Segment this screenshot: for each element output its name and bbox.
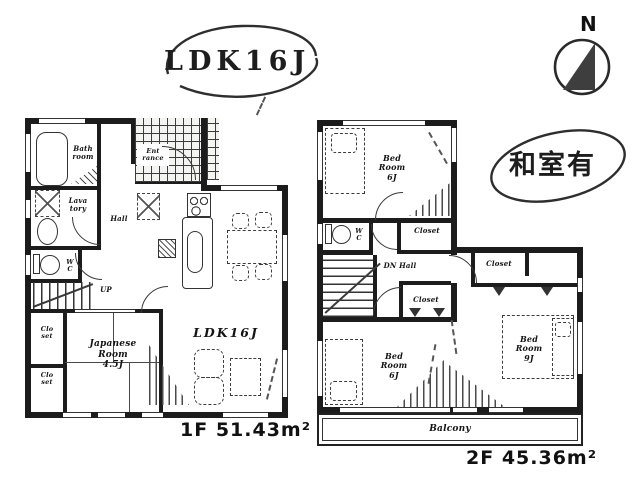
- living-table: [230, 358, 261, 396]
- dining-chair: [232, 213, 249, 229]
- floor2-area-label: 2F 45.36m²: [466, 449, 597, 468]
- dn-hall-label: DN Hall: [373, 260, 427, 272]
- window: [577, 278, 583, 292]
- hanger-triangle-icon: [493, 287, 505, 296]
- dining-table: [227, 230, 277, 264]
- lavatory-label: Lava tory: [63, 192, 93, 218]
- hanger-triangle-icon: [433, 308, 445, 317]
- closet-lower-label: Clo set: [31, 368, 63, 390]
- water-heater: [158, 239, 176, 258]
- window: [317, 132, 323, 180]
- window: [63, 412, 91, 418]
- floor1-plan: Bath room Lava tory W C Hall Ent rance: [25, 118, 288, 418]
- porch-tiles: [207, 118, 219, 180]
- stove: [187, 193, 211, 217]
- pillow: [555, 322, 571, 337]
- window: [317, 341, 323, 396]
- window: [39, 118, 85, 124]
- north-label: N: [580, 14, 597, 34]
- pillow: [331, 133, 357, 153]
- ldk-badge: LDK16J: [148, 20, 328, 104]
- window: [98, 412, 125, 418]
- window: [282, 235, 288, 281]
- shutter-mark-icon: [428, 132, 448, 164]
- corner-hatch: [409, 182, 451, 216]
- hall-label: Hall: [103, 212, 135, 226]
- toilet: [40, 255, 60, 275]
- sofa: [194, 349, 224, 378]
- shower-area-hatch: [71, 166, 97, 184]
- wall: [317, 317, 457, 322]
- toilet-tank: [325, 224, 332, 244]
- toilet-tank: [33, 254, 40, 274]
- window: [221, 185, 277, 191]
- north-arrow-icon: [552, 36, 616, 100]
- pillow: [330, 381, 357, 401]
- shutter-mark-icon: [451, 320, 458, 354]
- window: [577, 322, 583, 374]
- closet-a-label: Closet: [399, 223, 455, 239]
- dining-chair: [232, 265, 249, 281]
- bedroom-nw-label: Bed Room 6J: [369, 146, 415, 190]
- bedroom-sw-label: Bed Room 6J: [371, 343, 417, 389]
- balcony-label: Balcony: [319, 415, 581, 444]
- window: [317, 224, 323, 244]
- bedroom-e-label: Bed Room 9J: [507, 326, 551, 372]
- wc-label: W C: [352, 222, 366, 248]
- floor1-area-label: 1F 51.43m²: [180, 421, 311, 440]
- toilet: [332, 225, 351, 244]
- sliding-door: [75, 309, 135, 313]
- window: [451, 128, 457, 162]
- washing-machine: [35, 190, 60, 217]
- hanger-triangle-icon: [409, 308, 421, 317]
- corner-hatch: [449, 365, 505, 407]
- shutter-mark-icon: [266, 358, 278, 399]
- floor2-plan: Bed Room 6J W C Closet DN Hall Closet Cl…: [317, 120, 583, 413]
- window: [25, 134, 31, 172]
- refrigerator: [137, 193, 160, 220]
- wc-label: W C: [63, 253, 77, 279]
- wall: [525, 253, 529, 276]
- hanger-triangle-icon: [541, 287, 553, 296]
- window: [343, 120, 425, 126]
- up-label: UP: [93, 284, 119, 296]
- closet-upper-label: Clo set: [31, 322, 63, 344]
- corner-hatch: [149, 345, 189, 405]
- window: [142, 412, 163, 418]
- closet-b-label: Closet: [403, 292, 449, 308]
- window: [25, 255, 31, 275]
- bath-room-label: Bath room: [67, 140, 99, 166]
- sofa: [194, 377, 224, 405]
- closet-c-label: Closet: [473, 256, 525, 272]
- dining-chair: [255, 264, 272, 280]
- dining-chair: [255, 212, 272, 228]
- window: [282, 350, 288, 397]
- wall: [63, 309, 67, 412]
- bathtub: [36, 132, 68, 186]
- kitchen-sink: [187, 231, 203, 273]
- balcony: Balcony: [317, 413, 583, 446]
- window: [25, 200, 31, 218]
- window: [223, 412, 268, 418]
- wall: [397, 250, 457, 254]
- wash-basin: [37, 218, 58, 245]
- entrance-step-line: [135, 182, 203, 184]
- wall: [369, 218, 373, 255]
- wall: [31, 246, 101, 250]
- wall: [399, 281, 451, 285]
- ldk-badge-label: LDK16J: [164, 48, 310, 75]
- japanese-room-label: Japanese Room 4.5J: [69, 334, 157, 376]
- ldk-room-label: LDK16J: [185, 324, 267, 342]
- floor-plan-page: LDK16J N 和室有: [0, 0, 640, 481]
- wall: [471, 283, 577, 287]
